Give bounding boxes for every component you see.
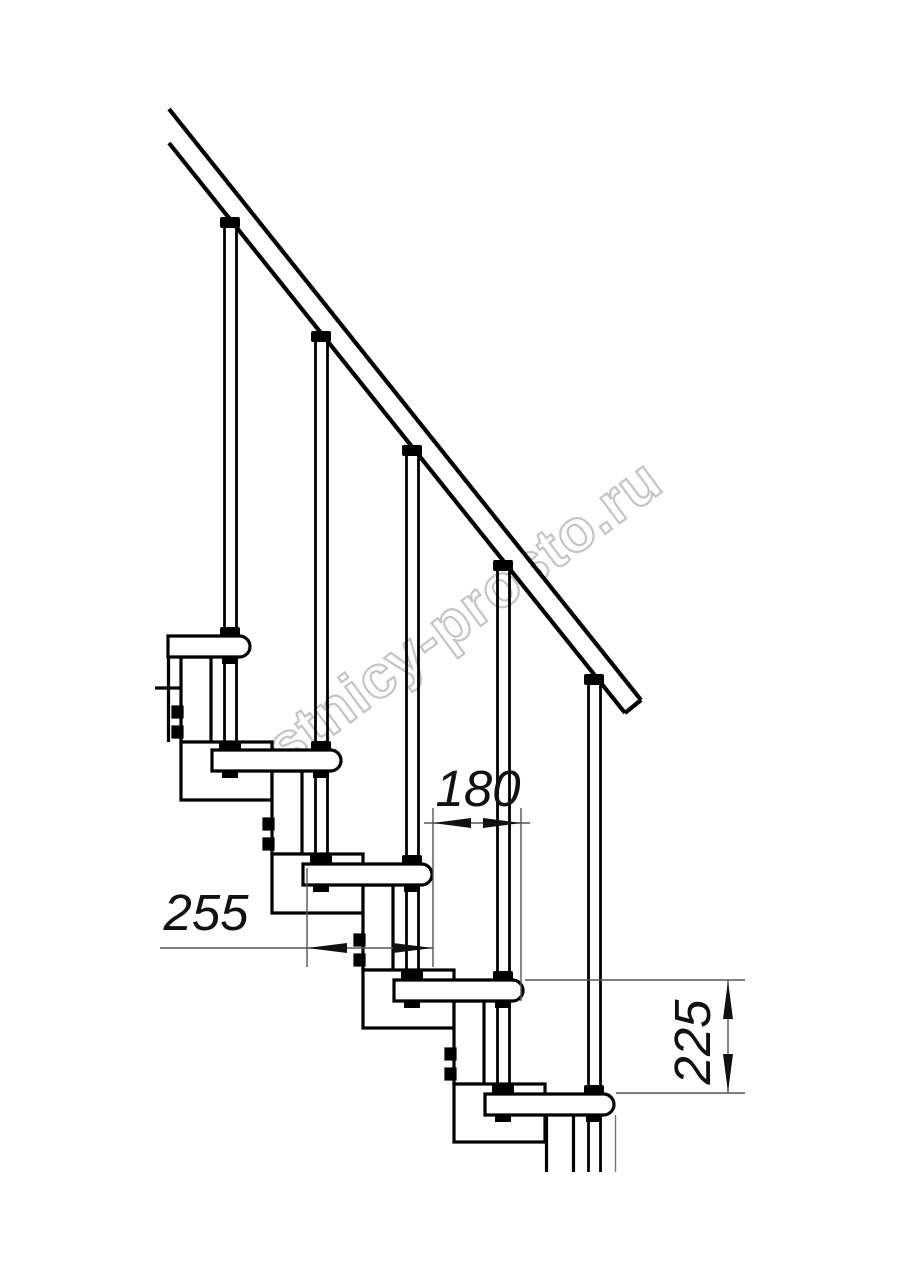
tread-5 — [485, 1094, 614, 1115]
bolt-icon — [355, 955, 364, 965]
rod-foot — [310, 855, 332, 864]
arrow-left-icon — [307, 943, 347, 953]
bolt-icon — [446, 1069, 455, 1079]
support-module-5 — [547, 1115, 574, 1172]
bolt-icon — [173, 707, 182, 717]
nut-icon — [222, 771, 238, 778]
baluster-4 — [498, 562, 510, 1092]
arrow-right-icon — [483, 818, 521, 828]
dimension-225-label: 225 — [664, 999, 721, 1086]
arrow-left-icon — [433, 818, 471, 828]
rail-foot — [311, 331, 331, 342]
rod-foot — [219, 741, 241, 750]
rod-foot — [492, 1085, 514, 1094]
baluster-3 — [407, 447, 419, 978]
arrow-right-icon — [393, 943, 433, 953]
nut-icon — [313, 771, 329, 778]
dimension-180: 180 — [424, 760, 530, 1001]
tread-1 — [168, 636, 250, 657]
nut-icon — [404, 885, 420, 892]
bolt-icon — [355, 935, 364, 945]
staircase-drawing: lestnicy-prosto.ru — [0, 0, 914, 1280]
baluster-2 — [316, 333, 328, 862]
nut-icon — [313, 885, 329, 892]
rail-foot — [584, 674, 604, 685]
tread-collar — [220, 627, 240, 636]
tread-2 — [212, 750, 341, 771]
bolt-icon — [173, 727, 182, 737]
dimension-255-label: 255 — [162, 884, 249, 941]
rod-foot — [401, 971, 423, 980]
tread-collar — [402, 855, 422, 864]
arrow-down-icon — [723, 1054, 733, 1092]
drawing-canvas: lestnicy-prosto.ru — [0, 0, 914, 1280]
arrow-up-icon — [723, 981, 733, 1019]
baluster-1 — [225, 219, 237, 748]
dimension-180-label: 180 — [435, 760, 520, 817]
tread-3 — [303, 864, 432, 885]
bolt-icon — [446, 1049, 455, 1059]
nut-icon — [222, 657, 238, 664]
tread-collar — [584, 1085, 604, 1094]
rail-foot — [220, 217, 240, 228]
nut-icon — [586, 1115, 602, 1122]
bolt-icon — [264, 819, 273, 829]
tread-collar — [493, 971, 513, 980]
rail-foot — [402, 445, 422, 456]
nut-icon — [404, 1001, 420, 1008]
tread-4 — [394, 980, 523, 1001]
rail-foot — [493, 560, 513, 571]
nut-icon — [495, 1001, 511, 1008]
nut-icon — [495, 1115, 511, 1122]
tread-collar — [311, 741, 331, 750]
bolt-icon — [264, 839, 273, 849]
dimension-225: 225 — [525, 980, 745, 1093]
